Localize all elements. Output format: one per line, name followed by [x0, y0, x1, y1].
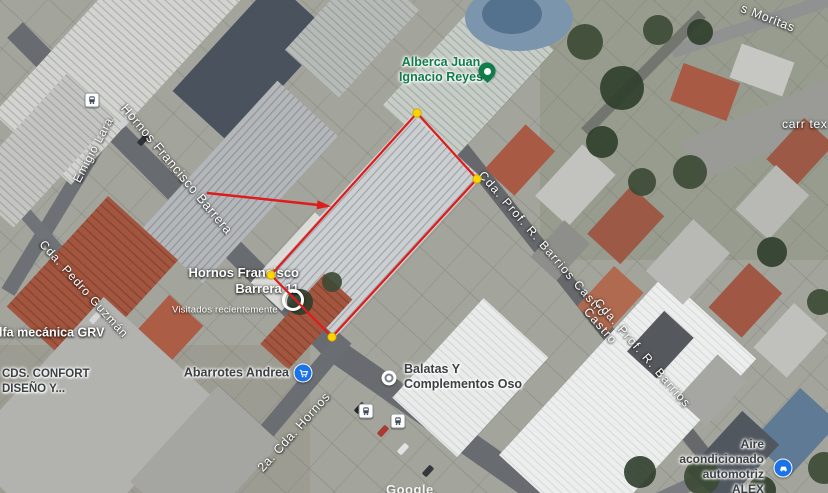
poi-label-alfa-mecanica[interactable]: Alfa mecánica GRV — [0, 326, 104, 341]
address-label[interactable]: Hornos Francisco Barrera 11 — [188, 265, 299, 297]
bus-stop-icon[interactable] — [85, 93, 100, 108]
car-service-pin-icon[interactable] — [774, 459, 793, 478]
bus-stop-icon[interactable] — [391, 414, 406, 429]
grocery-cart-pin-icon[interactable] — [294, 364, 313, 383]
street-label-carr: carr tex — [782, 117, 828, 131]
poi-label-alberca[interactable]: Alberca Juan Ignacio Reyes — [399, 55, 483, 85]
poi-label-cds-confort[interactable]: CDS. CONFORT DISEÑO Y... — [2, 367, 90, 397]
visited-ring-icon[interactable] — [282, 289, 304, 311]
satellite-map[interactable]: Emigio Lara Hornos Francisco Barrera Cda… — [0, 0, 828, 493]
poi-label-aire-acondicionado[interactable]: Aire acondicionado automotriz ALEX — [679, 437, 764, 493]
bus-stop-icon[interactable] — [359, 404, 374, 419]
green-place-pin-icon[interactable] — [479, 63, 496, 80]
poi-label-abarrotes[interactable]: Abarrotes Andrea — [184, 366, 289, 381]
generic-poi-pin-icon[interactable] — [382, 371, 397, 386]
address-visited-status: Visitados recientemente — [172, 305, 278, 316]
poi-label-balatas[interactable]: Balatas Y Complementos Oso — [404, 362, 522, 392]
google-watermark: Google — [386, 482, 434, 493]
